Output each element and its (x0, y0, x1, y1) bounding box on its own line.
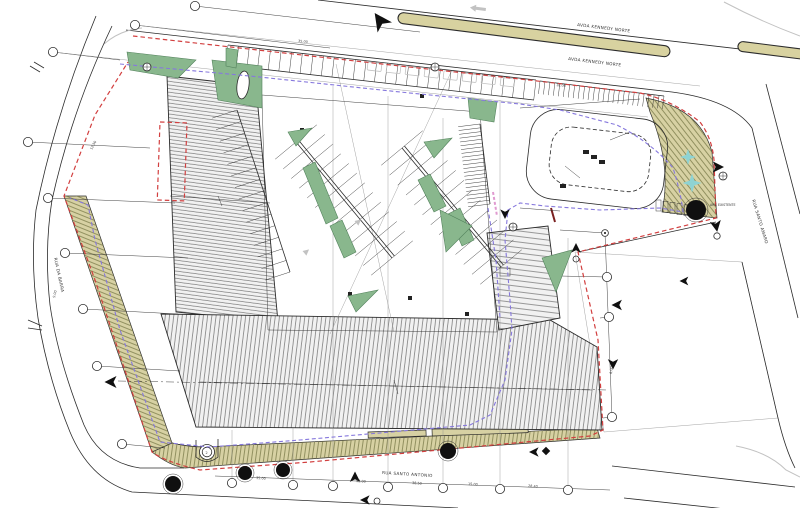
grid-bubble (43, 193, 52, 202)
line (460, 139, 482, 142)
grid-bubble (78, 304, 87, 313)
line (467, 196, 489, 199)
grid-bubble (48, 47, 57, 56)
line (65, 253, 188, 258)
arrow-icon (367, 8, 392, 33)
core-glyph (591, 155, 597, 159)
line (462, 154, 484, 157)
line (560, 230, 605, 233)
line (470, 73, 472, 93)
line (283, 134, 325, 168)
line (428, 68, 430, 88)
line (605, 233, 612, 417)
grid-bubble (190, 1, 199, 10)
line (347, 212, 389, 246)
line (332, 57, 334, 77)
line (28, 142, 150, 148)
line (491, 75, 493, 95)
line (463, 162, 485, 165)
grid-bubble (117, 439, 126, 448)
tree-icon (440, 443, 456, 459)
grid-bubble (383, 482, 392, 491)
line (578, 86, 580, 99)
roof-hatch (161, 314, 602, 430)
line (34, 62, 44, 68)
core-glyph (599, 160, 605, 164)
grid-bubble (328, 481, 337, 490)
diamond-icon (542, 447, 550, 455)
line (461, 147, 483, 150)
line (598, 88, 600, 101)
arrow-icon (529, 447, 539, 457)
line (588, 87, 590, 100)
paver (656, 200, 661, 211)
grid-bubble (227, 478, 236, 487)
line (480, 124, 490, 204)
dim-label: 15.00 (468, 482, 478, 487)
dim-label: 35.00 (256, 476, 266, 481)
line (548, 82, 550, 95)
building-inner-dashed (547, 125, 653, 194)
line (279, 51, 281, 71)
roof-hatch (487, 226, 560, 330)
grid-bubble (60, 248, 69, 257)
dim-label: 52.00 (356, 479, 366, 484)
line (300, 53, 302, 73)
median-strip (737, 41, 800, 60)
line (195, 6, 420, 32)
line (573, 85, 575, 98)
line (465, 181, 487, 184)
line (459, 72, 461, 92)
line (568, 85, 570, 98)
line (462, 158, 484, 161)
polygon (468, 98, 497, 122)
site-plan-canvas: 2 AVDA KENNEDY NORTE AVDA KENNEDY NORTE … (0, 0, 800, 508)
line (461, 143, 483, 146)
line (289, 52, 291, 72)
polygon (226, 48, 238, 68)
line (468, 204, 490, 207)
road-label-top-outer: AVDA KENNEDY NORTE (577, 22, 631, 34)
tree-icon (686, 200, 706, 220)
path (742, 262, 795, 468)
line (268, 50, 270, 70)
line (460, 135, 482, 138)
street-medians (397, 12, 800, 60)
road-label-right: RUA SANTO AMARO (751, 199, 769, 245)
grid-bubble (563, 485, 572, 494)
arrow-icon (710, 220, 723, 233)
line (502, 76, 504, 96)
polygon (424, 138, 452, 158)
line (633, 92, 635, 105)
line (464, 170, 486, 173)
polygon (348, 290, 378, 312)
tree-icon (238, 466, 252, 480)
line (466, 189, 488, 192)
line (638, 93, 640, 106)
dim-label: 38.50 (412, 481, 422, 486)
arrow-icon (571, 243, 581, 253)
line (462, 151, 484, 154)
arrow-icon (680, 277, 689, 286)
line (618, 91, 620, 104)
line (553, 83, 555, 96)
line (612, 466, 795, 487)
grid-bubble (23, 137, 32, 146)
road-label-left: RUA DA BARRA (53, 257, 65, 293)
line (624, 498, 800, 508)
line (459, 132, 481, 135)
core-glyph (583, 150, 589, 154)
core-glyph (560, 184, 566, 188)
line (336, 64, 394, 332)
line (467, 193, 489, 196)
line (331, 192, 373, 226)
grid-bubble (607, 412, 616, 421)
maroon-tick (551, 208, 555, 222)
path (736, 446, 800, 477)
line (468, 200, 490, 203)
line (353, 59, 355, 79)
line (371, 241, 413, 275)
circle (374, 498, 380, 504)
polygon (288, 128, 312, 146)
dim-label: 6.00 (609, 366, 614, 374)
ghost-stall (386, 64, 401, 74)
line (417, 67, 419, 87)
path (724, 2, 800, 36)
polygon (127, 52, 196, 78)
grid-bubble (602, 272, 611, 281)
circle (714, 233, 720, 239)
line (465, 177, 487, 180)
line (623, 91, 625, 104)
line (534, 80, 536, 100)
road-label-top-inner: AVDA KENNEDY NORTE (568, 56, 622, 68)
line (449, 70, 451, 90)
line (28, 320, 42, 326)
fixture (465, 312, 469, 316)
line (374, 62, 376, 82)
line (228, 45, 536, 80)
proposed-building (520, 99, 671, 212)
line (321, 56, 323, 76)
line (520, 208, 560, 211)
line (406, 66, 408, 86)
line (766, 84, 800, 214)
line (311, 55, 313, 75)
hatched-roofs (157, 76, 602, 430)
line (343, 58, 345, 78)
line (464, 174, 486, 177)
dim-label: 9.00 (52, 290, 58, 298)
grid-bubble (495, 484, 504, 493)
path (47, 26, 184, 468)
arrow-icon (105, 376, 117, 388)
line (458, 124, 480, 127)
dim-label: 35.00 (298, 39, 308, 44)
line (466, 185, 488, 188)
line (543, 82, 545, 95)
grid-bubble (438, 483, 447, 492)
dim-label: 18.00 (556, 83, 566, 88)
dim-label: 28.40 (528, 484, 538, 489)
grid-bubble (604, 312, 613, 321)
line (643, 94, 645, 107)
traffic-arrow-icon (470, 4, 487, 13)
line (628, 92, 630, 105)
line (364, 61, 366, 81)
site-plan: 2 AVDA KENNEDY NORTE AVDA KENNEDY NORTE … (0, 0, 800, 508)
line (603, 89, 605, 102)
line (565, 166, 580, 178)
tree-icon (276, 463, 290, 477)
line (538, 81, 540, 94)
empty-parcel (575, 222, 795, 468)
grid-bubble (92, 361, 101, 370)
arrow-icon (612, 300, 622, 310)
ghost-stall (462, 73, 477, 83)
fixture (408, 296, 412, 300)
ghost-stall (500, 77, 515, 87)
median-strip (397, 12, 670, 57)
line (610, 132, 630, 140)
tree-icon (165, 476, 181, 492)
circle (604, 232, 606, 234)
line (523, 79, 525, 99)
grid-bubble (130, 20, 139, 29)
line (583, 86, 585, 99)
line (135, 25, 330, 48)
line (459, 128, 481, 131)
line (226, 65, 534, 100)
line (355, 221, 397, 255)
line (608, 89, 610, 102)
line (318, 0, 800, 56)
line (463, 166, 485, 169)
symbol-label: 2 (206, 451, 208, 455)
pink-tick (493, 192, 497, 216)
line (593, 88, 595, 101)
arrow-icon (500, 209, 510, 219)
polygon (418, 174, 446, 212)
road-label-bottom: RUA SANTO ANTONIO (382, 470, 433, 478)
line (83, 309, 178, 314)
line (396, 64, 398, 84)
roof-hatch (167, 76, 278, 322)
grid-bubble (288, 480, 297, 489)
line (30, 66, 40, 72)
aisle-arrow-icon (303, 247, 311, 255)
line (520, 99, 640, 108)
tree-note: ARV. EXISTENTE (710, 203, 735, 207)
